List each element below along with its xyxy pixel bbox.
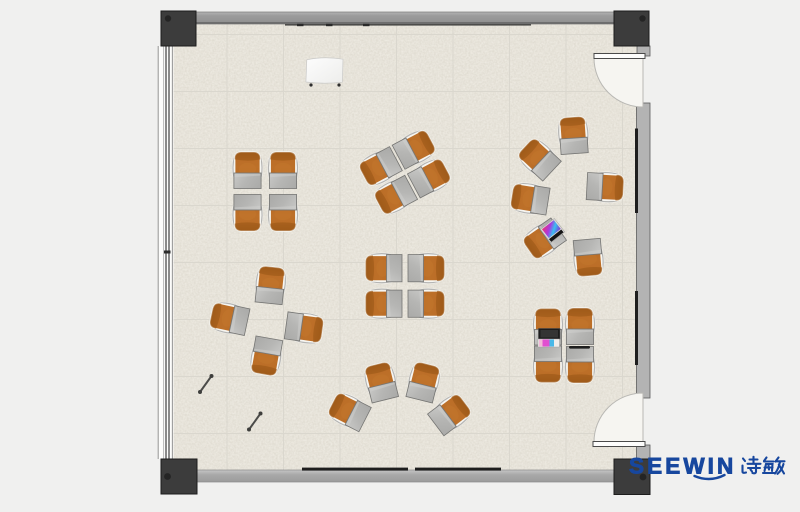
svg-text:SEEWIN: SEEWIN [629, 454, 736, 479]
